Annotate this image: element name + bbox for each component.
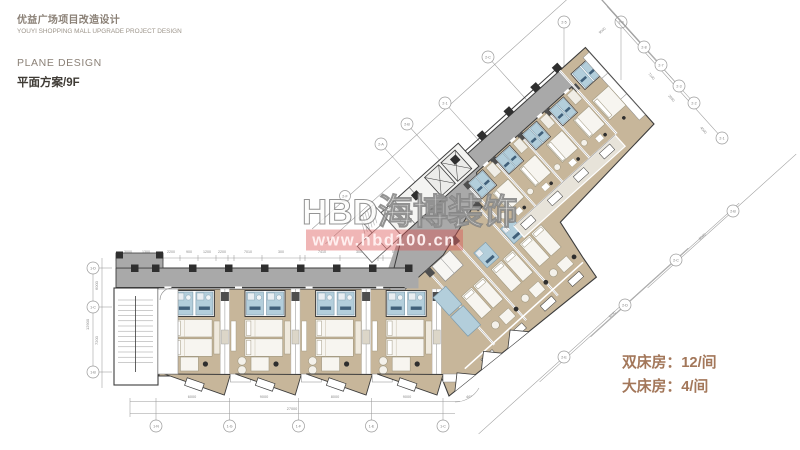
- svg-text:2-2: 2-2: [691, 101, 696, 105]
- svg-text:900: 900: [186, 250, 192, 254]
- svg-text:1200: 1200: [203, 250, 211, 254]
- svg-text:1-C: 1-C: [90, 305, 96, 309]
- svg-text:1-D: 1-D: [90, 266, 96, 270]
- svg-text:大床房：4/间: 大床房：4/间: [622, 377, 708, 395]
- svg-text:6000: 6000: [188, 395, 196, 399]
- svg-text:2-E: 2-E: [561, 355, 567, 359]
- svg-text:7200: 7200: [94, 335, 99, 345]
- svg-text:2-D: 2-D: [622, 303, 628, 307]
- svg-text:1-B: 1-B: [90, 370, 96, 374]
- svg-text:9000: 9000: [260, 395, 268, 399]
- svg-text:双床房：12/间: 双床房：12/间: [622, 353, 717, 371]
- svg-text:6000: 6000: [94, 280, 99, 290]
- svg-text:2200: 2200: [218, 250, 226, 254]
- svg-text:2-7: 2-7: [658, 63, 663, 67]
- svg-text:2-1: 2-1: [442, 101, 447, 105]
- svg-text:平面方案/9F: 平面方案/9F: [17, 75, 80, 89]
- svg-text:1-E: 1-E: [369, 424, 375, 428]
- svg-text:PLANE DESIGN: PLANE DESIGN: [17, 57, 102, 69]
- svg-text:46°: 46°: [466, 394, 472, 399]
- svg-text:12900: 12900: [85, 318, 90, 330]
- svg-text:2200: 2200: [167, 250, 175, 254]
- svg-text:2-3: 2-3: [676, 84, 681, 88]
- svg-text:www.hbd100.cn: www.hbd100.cn: [311, 232, 456, 250]
- svg-text:9000: 9000: [403, 395, 411, 399]
- svg-text:8000: 8000: [331, 395, 339, 399]
- svg-text:2-8: 2-8: [641, 45, 646, 49]
- svg-text:HBD海博装饰: HBD海博装饰: [302, 193, 518, 232]
- svg-text:1-N: 1-N: [153, 424, 159, 428]
- svg-text:2-A: 2-A: [378, 142, 384, 146]
- svg-text:7010: 7010: [244, 250, 252, 254]
- svg-text:2-B: 2-B: [730, 209, 736, 213]
- svg-text:1-F: 1-F: [296, 424, 302, 428]
- svg-text:2-5: 2-5: [561, 20, 566, 24]
- svg-text:2-C: 2-C: [485, 55, 491, 59]
- svg-text:27000: 27000: [287, 407, 298, 411]
- svg-text:优益广场项目改造设计: 优益广场项目改造设计: [17, 13, 120, 26]
- svg-text:2-1: 2-1: [719, 136, 724, 140]
- svg-text:7410: 7410: [318, 250, 326, 254]
- svg-text:300: 300: [278, 250, 284, 254]
- svg-text:2-C: 2-C: [673, 258, 679, 262]
- svg-text:YOUYI SHOPPING MALL UPGRADE PR: YOUYI SHOPPING MALL UPGRADE PROJECT DESI…: [17, 28, 182, 35]
- svg-text:1-C: 1-C: [440, 424, 446, 428]
- svg-text:1-G: 1-G: [227, 424, 233, 428]
- svg-text:2-B: 2-B: [404, 122, 410, 126]
